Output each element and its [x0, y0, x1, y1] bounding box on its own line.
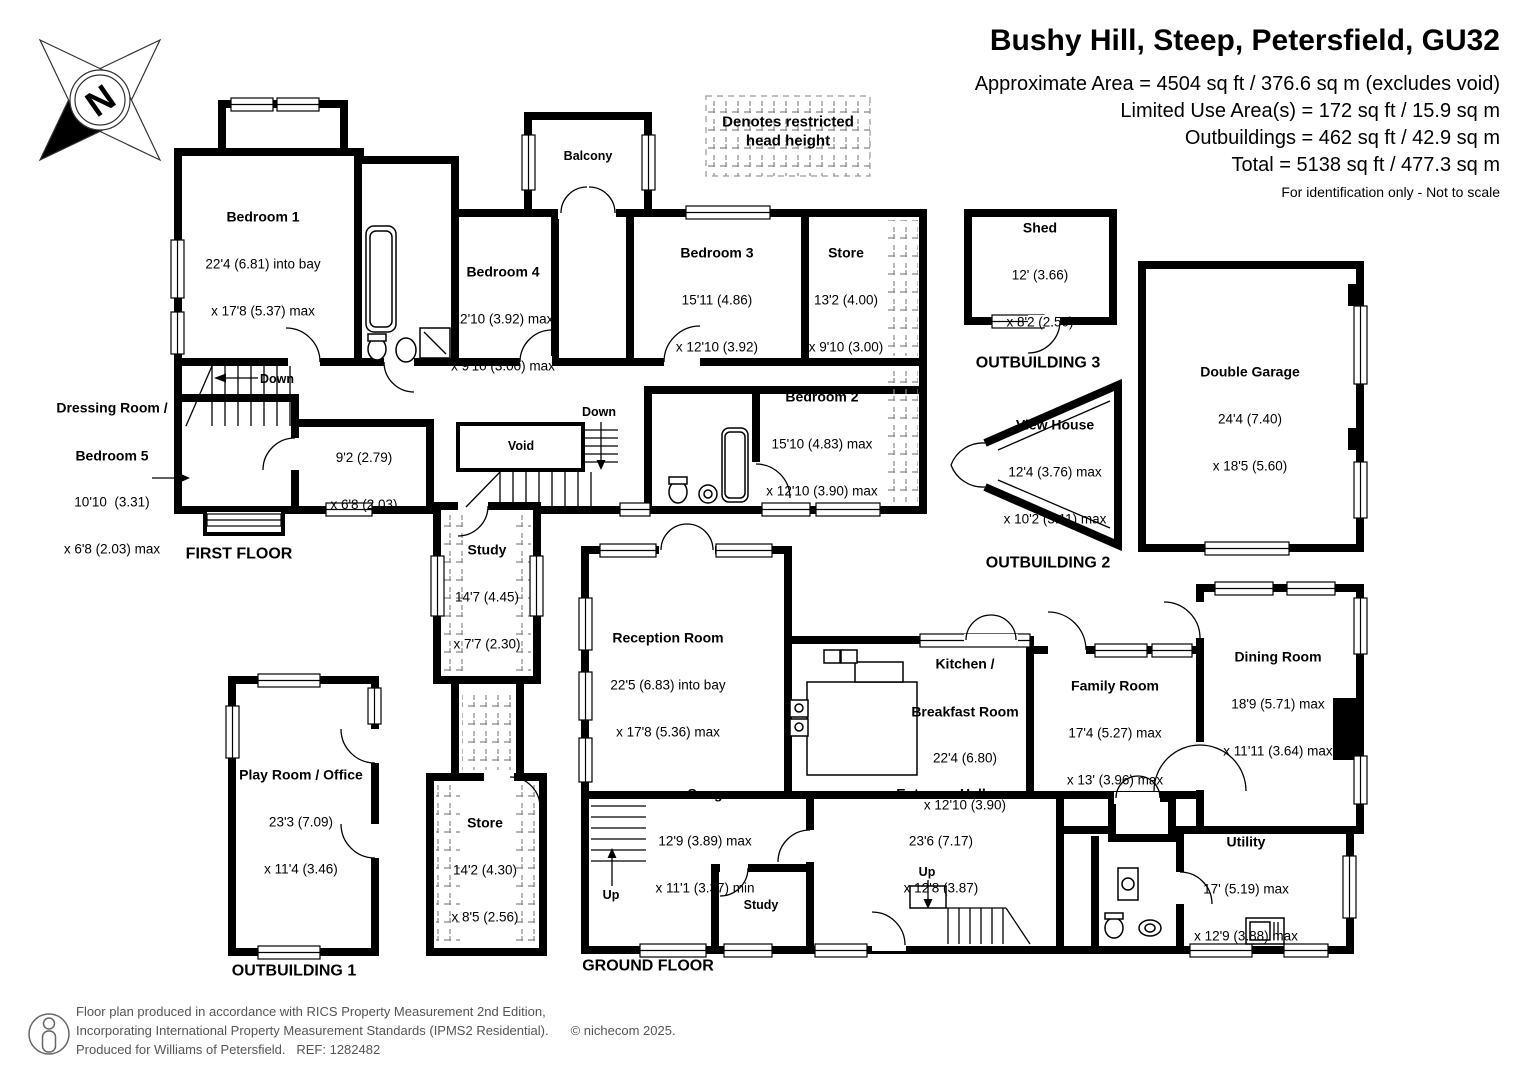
- room-label-double-garage: Double Garage 24'4 (7.40) x 18'5 (5.60): [1200, 332, 1300, 489]
- room-label-bedroom-3: Bedroom 3 15'11 (4.86) x 12'10 (3.92): [676, 213, 758, 370]
- person-icon: [29, 1014, 69, 1054]
- compass-rose-icon: N: [40, 40, 160, 160]
- up-label-left: Up: [603, 888, 620, 903]
- footer-ipms-text: Incorporating International Property Mea…: [76, 1023, 549, 1038]
- footer-line-1: Floor plan produced in accordance with R…: [76, 1004, 546, 1019]
- balcony-label: Balcony: [564, 149, 613, 164]
- floor-label-outbuilding-2: OUTBUILDING 2: [986, 555, 1110, 574]
- floor-label-outbuilding-1: OUTBUILDING 1: [232, 963, 356, 982]
- outbuildings-area-line: Outbuildings = 462 sq ft / 42.9 sq m: [1185, 127, 1500, 150]
- down-label-left: Down: [260, 372, 294, 387]
- disclaimer: For identification only - Not to scale: [1281, 184, 1500, 200]
- room-label-bedroom-4: Bedroom 4 12'10 (3.92) max x 9'10 (3.00)…: [451, 232, 555, 389]
- room-label-store-first-floor: Store 13'2 (4.00) x 9'10 (3.00): [809, 213, 884, 370]
- room-label-view-house: View House 12'4 (3.76) max x 10'2 (3.11)…: [1004, 385, 1107, 542]
- approx-area-line: Approximate Area = 4504 sq ft / 376.6 sq…: [975, 73, 1500, 96]
- room-label-utility: Utility 17' (5.19) max x 12'9 (3.88) max: [1194, 802, 1298, 959]
- room-label-reception-room: Reception Room 22'5 (6.83) into bay x 17…: [610, 598, 725, 755]
- room-label-study-first-floor: Study 14'7 (4.45) x 7'7 (2.30): [453, 510, 520, 667]
- floor-label-first-floor: FIRST FLOOR: [186, 546, 293, 565]
- down-label-center: Down: [582, 405, 616, 420]
- footer-copyright: © nichecom 2025.: [571, 1023, 676, 1038]
- room-label-snug: Snug 12'9 (3.89) max x 11'1 (3.37) min: [655, 754, 754, 911]
- legend-restricted-line1: Denotes restricted: [722, 114, 854, 131]
- total-area-line: Total = 5138 sq ft / 477.3 sq m: [1232, 154, 1501, 177]
- floor-label-ground-floor: GROUND FLOOR: [582, 958, 714, 977]
- floorplan-page: N Bushy Hill, Steep, Petersfield, GU32 A…: [0, 0, 1527, 1080]
- room-label-entrance-hall: Entrance Hall 23'6 (7.17) x 12'8 (3.87): [896, 754, 985, 911]
- ground-floor-walls: [232, 550, 1360, 952]
- legend-restricted-line2: head height: [746, 133, 830, 150]
- floor-label-outbuilding-3: OUTBUILDING 3: [976, 355, 1100, 374]
- room-label-shed: Shed 12' (3.66) x 8'2 (2.50): [1006, 188, 1073, 345]
- up-label-right: Up: [919, 865, 936, 880]
- room-label-inner-room: 9'2 (2.79) x 6'8 (2.03): [330, 419, 397, 529]
- void-label: Void: [508, 439, 534, 454]
- room-label-dining-room: Dining Room 18'9 (5.71) max x 11'11 (3.6…: [1223, 617, 1332, 774]
- room-label-play-room-office: Play Room / Office 23'3 (7.09) x 11'4 (3…: [239, 735, 363, 892]
- room-label-bedroom-2: Bedroom 2 15'10 (4.83) max x 12'10 (3.90…: [766, 357, 877, 514]
- study-ground-floor-label: Study: [744, 898, 779, 913]
- page-title: Bushy Hill, Steep, Petersfield, GU32: [990, 24, 1500, 58]
- room-label-family-room: Family Room 17'4 (5.27) max x 13' (3.96)…: [1067, 646, 1163, 803]
- footer-line-2: Incorporating International Property Mea…: [76, 1023, 676, 1038]
- room-label-bedroom-1: Bedroom 1 22'4 (6.81) into bay x 17'8 (5…: [205, 177, 320, 334]
- footer-line-3: Produced for Williams of Petersfield. RE…: [76, 1042, 380, 1057]
- limited-use-line: Limited Use Area(s) = 172 sq ft / 15.9 s…: [1120, 100, 1500, 123]
- room-label-store-ground-floor: Store 14'2 (4.30) x 8'5 (2.56): [451, 783, 518, 940]
- room-label-dressing-room-bedroom-5: Dressing Room / Bedroom 5 10'10 (3.31) x…: [56, 369, 167, 574]
